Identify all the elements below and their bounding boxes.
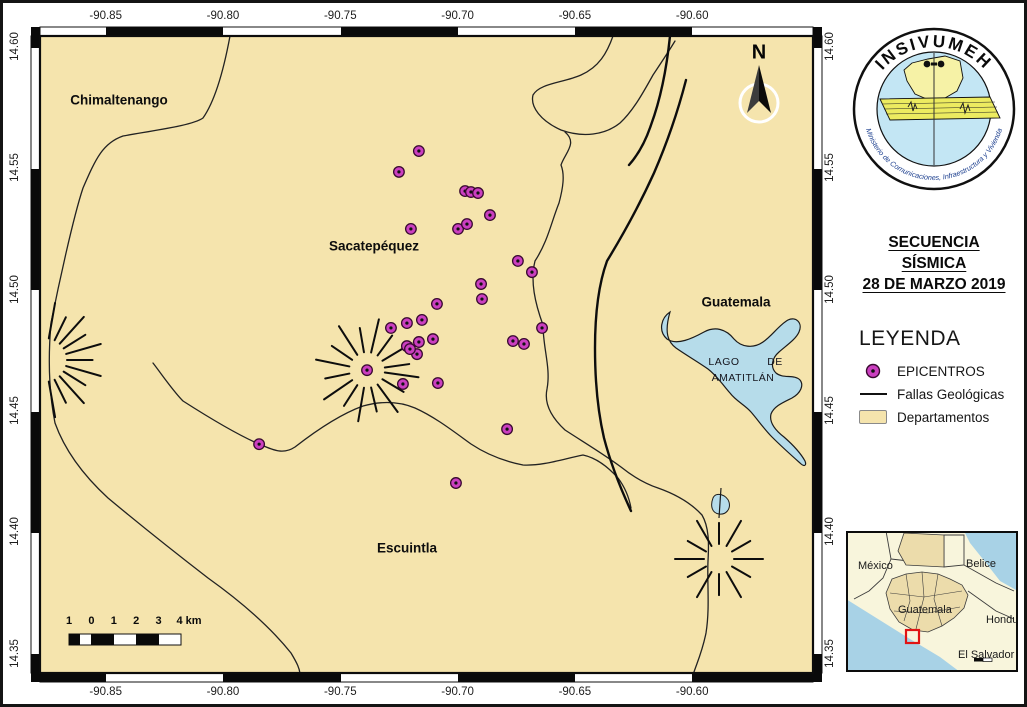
title-line-1: SECUENCIA bbox=[843, 232, 1025, 253]
lat-tick-text: 14.45 bbox=[824, 396, 836, 425]
insivumeh-logo: INSIVUMEH Ministerio de Comunicaciones, … bbox=[848, 23, 1020, 195]
epicenter-icon bbox=[859, 362, 887, 380]
epicenter-marker bbox=[402, 318, 413, 329]
lat-tick-label: 14.45 bbox=[9, 396, 21, 428]
epicenter-marker bbox=[476, 279, 487, 290]
fault-line-icon bbox=[859, 393, 887, 395]
lon-tick-label: -90.75 bbox=[324, 686, 357, 698]
lat-tick-text: 14.40 bbox=[9, 518, 21, 547]
legend-label-fallas: Fallas Geológicas bbox=[897, 387, 1004, 402]
epicenter-marker bbox=[406, 224, 417, 235]
scale-bar-number: 2 bbox=[133, 615, 139, 627]
epicenter-marker bbox=[537, 323, 548, 334]
epicenter-marker bbox=[405, 344, 416, 355]
label-escuintla: Escuintla bbox=[377, 541, 437, 556]
title-line-3: 28 DE MARZO 2019 bbox=[843, 274, 1025, 295]
inset-label-mexico: México bbox=[858, 560, 893, 572]
epicenter-marker bbox=[513, 256, 524, 267]
lat-tick-label: 14.40 bbox=[824, 518, 836, 550]
epicenter-marker bbox=[451, 478, 462, 489]
lat-tick-text: 14.40 bbox=[824, 518, 836, 547]
epicenter-marker bbox=[394, 167, 405, 178]
lon-tick-label: -90.65 bbox=[559, 10, 592, 22]
scale-bar-number: 1 bbox=[66, 615, 72, 627]
label-sacatepequez: Sacatepéquez bbox=[329, 239, 419, 254]
lon-tick-label: -90.80 bbox=[207, 686, 240, 698]
lon-tick-label: -90.60 bbox=[676, 10, 709, 22]
inset-locator-map: México Belice Guatemala Honduras El Salv… bbox=[846, 531, 1018, 672]
epicenter-marker bbox=[398, 379, 409, 390]
north-label: N bbox=[752, 42, 766, 65]
lat-tick-text: 14.35 bbox=[824, 639, 836, 668]
epicenter-marker bbox=[527, 267, 538, 278]
epicenter-marker bbox=[508, 336, 519, 347]
epicenter-marker bbox=[432, 299, 443, 310]
scale-bar-number: 0 bbox=[88, 615, 94, 627]
lat-tick-label: 14.60 bbox=[9, 32, 21, 64]
epicenter-marker bbox=[362, 365, 373, 376]
epicenter-marker bbox=[502, 424, 513, 435]
lat-tick-label: 14.40 bbox=[9, 518, 21, 550]
legend-label-epicentros: EPICENTROS bbox=[897, 364, 985, 379]
inset-peten-block bbox=[898, 533, 944, 567]
lat-tick-label: 14.50 bbox=[9, 275, 21, 307]
inset-label-guatemala: Guatemala bbox=[898, 604, 953, 616]
epicenter-marker bbox=[462, 219, 473, 230]
logo-seismogram-band bbox=[880, 97, 1000, 120]
epicenter-marker bbox=[254, 439, 265, 450]
title-line-2: SÍSMICA bbox=[843, 253, 1025, 274]
lon-tick-label: -90.80 bbox=[207, 10, 240, 22]
lat-tick-text: 14.50 bbox=[824, 275, 836, 304]
label-amatitlan: AMATITLÁN bbox=[712, 372, 775, 384]
lat-tick-text: 14.45 bbox=[9, 396, 21, 425]
inset-label-honduras: Honduras bbox=[986, 614, 1018, 626]
lat-tick-text: 14.55 bbox=[824, 154, 836, 183]
legend-heading: LEYENDA bbox=[859, 327, 961, 351]
epicenter-marker bbox=[473, 188, 484, 199]
lat-tick-label: 14.35 bbox=[9, 639, 21, 671]
seismic-map-page: Chimaltenango Sacatepéquez Guatemala Esc… bbox=[0, 0, 1027, 707]
label-lago-de: DE bbox=[767, 356, 783, 368]
scale-bar-number: 1 bbox=[111, 615, 117, 627]
lat-tick-text: 14.60 bbox=[9, 32, 21, 61]
lon-tick-label: -90.85 bbox=[89, 10, 122, 22]
epicenter-marker bbox=[433, 378, 444, 389]
label-lago: LAGO bbox=[708, 356, 739, 368]
lat-tick-text: 14.55 bbox=[9, 154, 21, 183]
lat-tick-label: 14.60 bbox=[824, 32, 836, 64]
epicenter-marker bbox=[417, 315, 428, 326]
map-title: SECUENCIA SÍSMICA 28 DE MARZO 2019 bbox=[843, 232, 1025, 295]
epicenter-marker bbox=[477, 294, 488, 305]
lat-tick-text: 14.50 bbox=[9, 275, 21, 304]
epicenter-marker bbox=[519, 339, 530, 350]
legend-item-fallas: Fallas Geológicas bbox=[859, 384, 1004, 404]
scale-bar bbox=[69, 634, 181, 645]
department-swatch-icon bbox=[859, 410, 887, 424]
lon-tick-label: -90.60 bbox=[676, 686, 709, 698]
lat-tick-label: 14.55 bbox=[824, 154, 836, 186]
lon-tick-label: -90.70 bbox=[441, 686, 474, 698]
inset-label-belice: Belice bbox=[966, 558, 996, 570]
lat-tick-text: 14.60 bbox=[824, 32, 836, 61]
label-chimaltenango: Chimaltenango bbox=[70, 93, 168, 108]
legend-label-departamentos: Departamentos bbox=[897, 410, 989, 425]
legend-item-departamentos: Departamentos bbox=[859, 407, 989, 427]
scale-bar-number: 4 km bbox=[176, 615, 201, 627]
lon-tick-label: -90.85 bbox=[89, 686, 122, 698]
lon-tick-label: -90.70 bbox=[441, 10, 474, 22]
legend-item-epicentros: EPICENTROS bbox=[859, 361, 985, 381]
epicenter-marker bbox=[414, 146, 425, 157]
epicenter-marker bbox=[485, 210, 496, 221]
lat-tick-text: 14.35 bbox=[9, 639, 21, 668]
epicenter-marker bbox=[414, 337, 425, 348]
lon-tick-label: -90.65 bbox=[559, 686, 592, 698]
epicenter-marker bbox=[386, 323, 397, 334]
lon-tick-label: -90.75 bbox=[324, 10, 357, 22]
lat-tick-label: 14.45 bbox=[824, 396, 836, 428]
scale-bar-number: 3 bbox=[156, 615, 162, 627]
label-guatemala: Guatemala bbox=[701, 295, 770, 310]
lat-tick-label: 14.55 bbox=[9, 154, 21, 186]
epicenter-marker bbox=[428, 334, 439, 345]
lat-tick-label: 14.50 bbox=[824, 275, 836, 307]
inset-label-el-salvador: El Salvador bbox=[958, 649, 1015, 661]
lat-tick-label: 14.35 bbox=[824, 639, 836, 671]
